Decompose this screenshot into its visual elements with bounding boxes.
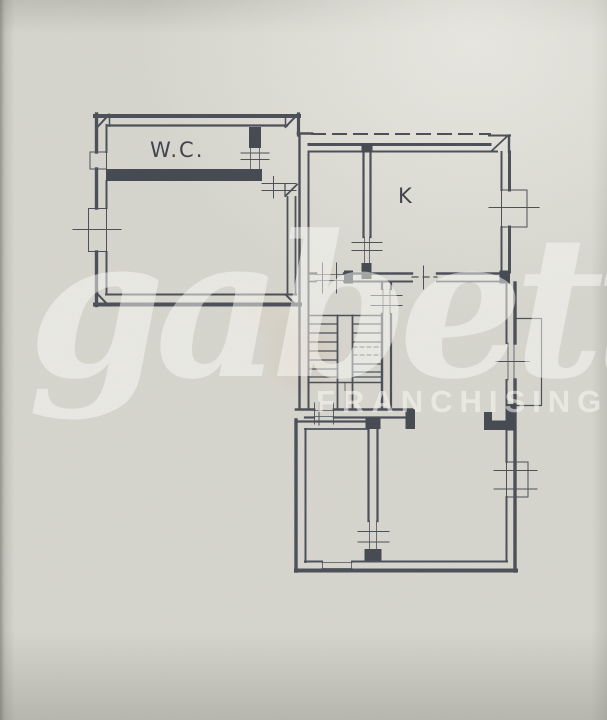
floorplan-drawing: W.C. K	[0, 0, 607, 720]
paper-grain-overlay	[0, 0, 607, 720]
scanned-floorplan-photo: W.C. K gabetti FRANCHISING	[0, 0, 607, 720]
